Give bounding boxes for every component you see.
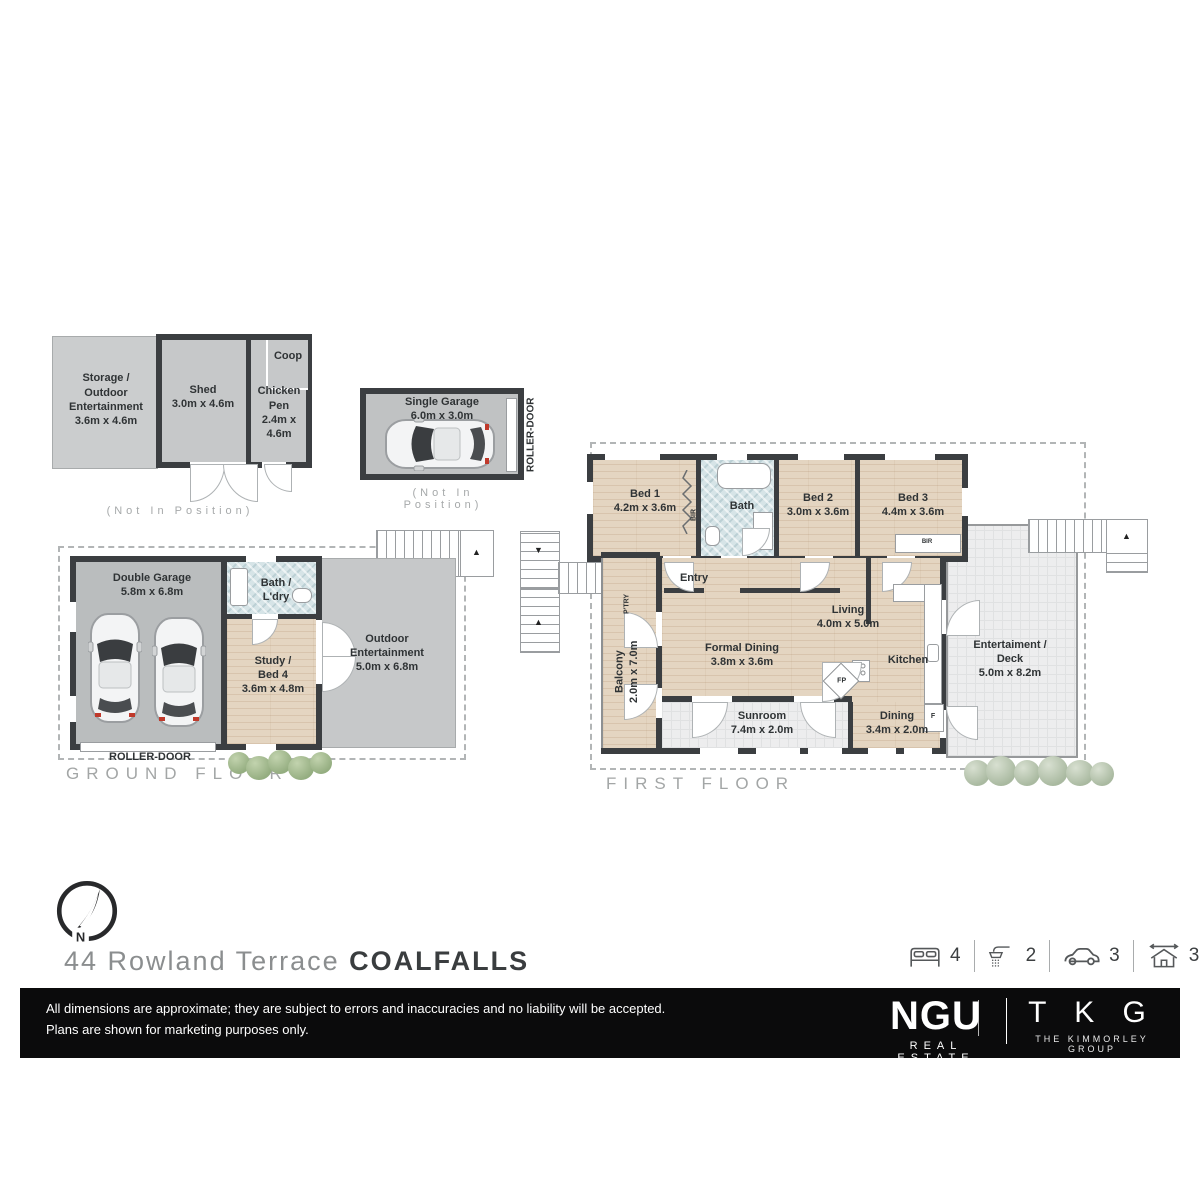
stat-cars-value: 3 <box>1109 945 1120 967</box>
address-suburb: COALFALLS <box>349 946 529 976</box>
ngu-logo: NGU REAL ESTATE <box>886 996 986 1064</box>
car-top-icon <box>88 612 142 724</box>
chicken-pen-label: Chicken Pen 2.4m x 4.6m <box>248 388 310 438</box>
study-label: Study / Bed 4 3.6m x 4.8m <box>238 650 308 700</box>
ground-outdoor-label: Outdoor Entertainment 5.0m x 6.8m <box>336 628 438 678</box>
bed3-label: Bed 3 4.4m x 3.6m <box>868 488 958 522</box>
bath-ldry-label: Bath / L'dry <box>246 574 306 606</box>
chicken-pen-door <box>264 464 292 492</box>
deck-stairs-arrow: ▲ <box>1122 532 1131 541</box>
stat-separator <box>1133 940 1134 972</box>
property-stats: 4 2 3 <box>908 940 1200 972</box>
balcony-label: Balcony 2.0m x 7.0m <box>612 612 642 732</box>
first-stairs-upper <box>520 531 560 589</box>
bathtub <box>717 463 771 489</box>
bed1-label: Bed 1 4.2m x 3.6m <box>600 484 690 518</box>
compass-icon: N <box>50 874 124 948</box>
single-garage-roller-label: ROLLER-DOOR <box>524 392 538 478</box>
formal-dining-label: Formal Dining 3.8m x 3.6m <box>682 638 802 672</box>
shed-door-left <box>190 464 225 502</box>
deck-stairs-lower <box>1106 553 1148 573</box>
floorplan-page: Storage / Outdoor Entertainment 3.6m x 4… <box>0 0 1200 1200</box>
car-icon <box>1063 944 1101 968</box>
stat-baths-value: 2 <box>1026 945 1037 967</box>
ngu-logo-subtext: REAL ESTATE <box>886 1040 986 1064</box>
stat-cars: 3 <box>1063 944 1120 968</box>
stat-separator <box>1049 940 1050 972</box>
bed2-label: Bed 2 3.0m x 3.6m <box>776 488 860 522</box>
bed-icon <box>908 943 942 969</box>
garage-car-1 <box>88 612 142 729</box>
ngu-logo-text: NGU <box>886 996 986 1036</box>
stat-beds: 4 <box>908 943 961 969</box>
logo-divider <box>1006 998 1007 1044</box>
stat-area-value: 338m² <box>1189 945 1200 967</box>
first-stairs-connector <box>558 562 606 594</box>
double-garage-label: Double Garage 5.8m x 6.8m <box>92 568 212 602</box>
compass: N <box>50 874 124 953</box>
dining-label: Dining 3.4m x 2.0m <box>858 706 936 740</box>
deck-stairs <box>1028 519 1108 553</box>
tkg-logo-subtext: THE KIMMORLEY GROUP <box>1024 1034 1160 1054</box>
bath-first-label: Bath <box>712 498 772 514</box>
single-garage-note: (Not In Position) <box>382 487 504 511</box>
stat-baths: 2 <box>988 943 1037 969</box>
living-label: Living 4.0m x 5.0m <box>800 600 896 634</box>
garage-car-2 <box>152 616 206 733</box>
stairs-up-arrow: ▲ <box>534 618 543 627</box>
deck-label: Entertaiment / Deck 5.0m x 8.2m <box>952 634 1068 684</box>
stat-separator <box>974 940 975 972</box>
stat-beds-value: 4 <box>950 945 961 967</box>
shower-icon <box>988 943 1018 969</box>
compass-n-label: N <box>76 930 85 945</box>
tkg-logo-text: T K G <box>1024 998 1160 1028</box>
car <box>384 417 496 471</box>
stairs-down-arrow: ▼ <box>534 546 543 555</box>
tkg-logo: T K G THE KIMMORLEY GROUP <box>1024 998 1160 1054</box>
ground-roller-label: ROLLER-DOOR <box>90 750 210 764</box>
kitchen-label: Kitchen <box>878 652 938 668</box>
first-floor-title: FIRST FLOOR <box>606 774 795 794</box>
car-top-icon <box>384 417 496 471</box>
stairs-up-arrow: ▲ <box>472 548 481 557</box>
stat-area: 338m² <box>1147 942 1200 970</box>
entry-label: Entry <box>664 570 724 586</box>
single-garage-roller-strip <box>506 398 517 472</box>
address-street: 44 Rowland Terrace <box>64 946 349 976</box>
bed3-bir-label: BIR <box>907 538 947 548</box>
coop-label: Coop <box>268 346 308 366</box>
sunroom-label: Sunroom 7.4m x 2.0m <box>712 706 812 740</box>
toilet <box>705 526 720 546</box>
shed-label: Shed 3.0m x 4.6m <box>163 380 243 414</box>
ngu-vertical-mark <box>978 1000 979 1036</box>
outbuilding-note: (Not In Position) <box>100 505 260 517</box>
car-top-icon <box>152 616 206 728</box>
fireplace-label: FP <box>837 676 846 685</box>
storage-label: Storage / Outdoor Entertainment 3.6m x 4… <box>56 360 156 440</box>
shed-door-right <box>223 464 258 502</box>
single-garage-label: Single Garage 6.0m x 3.0m <box>382 394 502 424</box>
house-area-icon <box>1147 942 1181 970</box>
disclaimer-text: All dimensions are approximate; they are… <box>46 998 746 1041</box>
address: 44 Rowland Terrace COALFALLS <box>64 946 529 977</box>
